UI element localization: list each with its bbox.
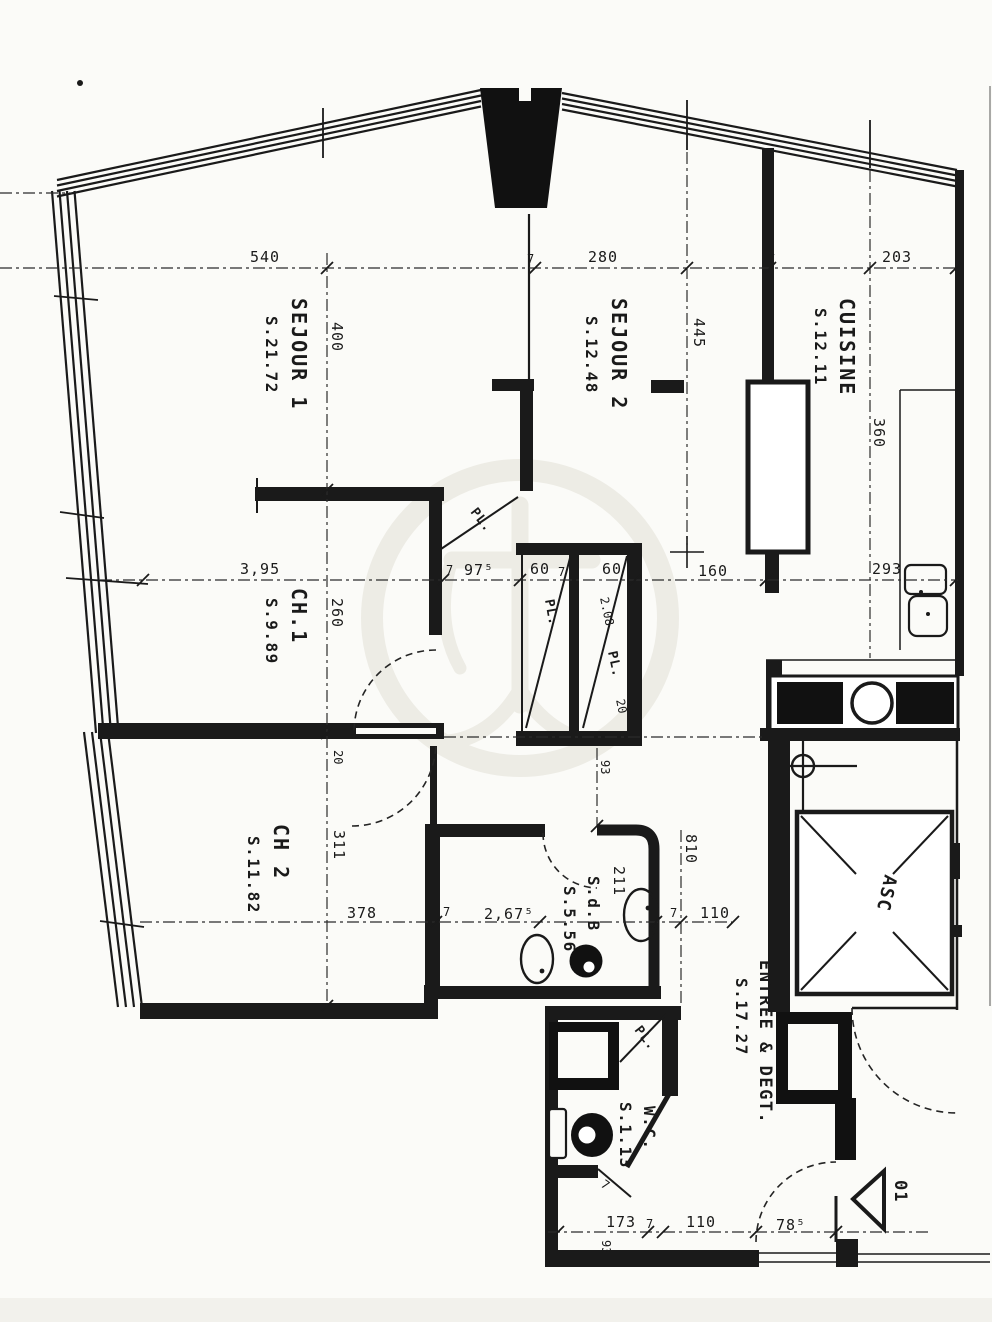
closet-label-pl1: PL. — [467, 505, 495, 535]
door-number-label: 01 — [890, 1180, 910, 1202]
dim-203: 203 — [882, 248, 912, 266]
door-number-triangle-icon — [853, 1171, 884, 1229]
room-area-sejour1: S.21.72 — [262, 316, 281, 394]
dim-785: 78⁵ — [776, 1216, 806, 1234]
dim-211: 211 — [610, 866, 628, 896]
room-area-sdb: S.5.56 — [560, 886, 579, 953]
dim-7-w3: 7 — [770, 564, 777, 578]
duct-left — [777, 682, 843, 724]
dim-7-top2: 7 — [768, 252, 775, 266]
room-label-wc: W.C. — [640, 1106, 659, 1151]
floor-plan-page: SEJOUR 1 S.21.72 SEJOUR 2 S.12.48 CUISIN… — [0, 0, 992, 1322]
duct-pipe-circle — [852, 683, 892, 723]
room-label-ch2: CH 2 — [269, 824, 293, 880]
stray-ink-dot — [77, 80, 83, 86]
closet-dim-208: 2.08 — [597, 596, 617, 627]
dim-7-top1: 7 — [527, 252, 534, 266]
door-arc-lobby — [852, 1008, 957, 1113]
dim-293: 293 — [872, 560, 902, 578]
dim-311: 311 — [330, 830, 348, 860]
dim-378: 378 — [347, 904, 377, 922]
dim-540: 540 — [250, 248, 280, 266]
dim-93-hall: 93 — [598, 760, 612, 774]
kitchen-unit — [748, 382, 808, 552]
room-area-wc: S.1.13 — [616, 1102, 635, 1169]
dim-7-w2: 7 — [558, 565, 565, 579]
room-area-entree: S.17.27 — [732, 978, 751, 1056]
dim-110-b: 110 — [686, 1213, 716, 1231]
wc-cistern — [549, 1109, 566, 1158]
dim-260: 260 — [328, 598, 346, 628]
dim-7-b1: 7 — [646, 1217, 653, 1231]
dim-2675: 2,67⁵ — [484, 905, 534, 923]
dim-7-ch2: 7 — [443, 905, 450, 919]
dim-400: 400 — [328, 322, 346, 352]
dim-60b: 60 — [602, 560, 622, 578]
dim-110-hall: 110 — [700, 904, 730, 922]
dim-7-w1: 7 — [446, 563, 453, 577]
room-label-cuisine: CUISINE — [835, 298, 859, 396]
duct-band — [760, 660, 960, 741]
dim-445: 445 — [690, 318, 708, 348]
dim-810: 810 — [682, 834, 700, 864]
room-label-sejour1: SEJOUR 1 — [287, 298, 311, 410]
dim-160: 160 — [698, 562, 728, 580]
dim-173: 173 — [606, 1213, 636, 1231]
room-area-sejour2: S.12.48 — [582, 316, 601, 394]
scan-edge-shadow — [0, 1298, 992, 1322]
facade-column — [480, 88, 562, 208]
room-area-ch1: S.9.89 — [262, 598, 281, 665]
closet-label-pl2: PL. — [541, 598, 560, 627]
dim-93-b: 93 — [599, 1240, 613, 1254]
closet-label-pl4: PL. — [631, 1023, 659, 1053]
duct-right — [896, 682, 954, 724]
dim-20: 20 — [331, 750, 345, 764]
lift — [777, 741, 952, 994]
room-area-cuisine: S.12.11 — [811, 308, 830, 386]
closet-dim-20: 20 — [613, 698, 630, 715]
room-label-sejour2: SEJOUR 2 — [607, 298, 631, 410]
room-label-entree: ENTREE & DEGT. — [755, 960, 775, 1124]
door-arc-ch2 — [352, 742, 436, 826]
closet-label-pl3: PL. — [604, 650, 624, 679]
dim-280: 280 — [588, 248, 618, 266]
dim-60a: 60 — [530, 560, 550, 578]
sdb-washbasin — [521, 935, 553, 983]
room-area-ch2: S.11.82 — [244, 836, 263, 914]
watermark-logo — [372, 470, 668, 766]
floor-plan-drawing: SEJOUR 1 S.21.72 SEJOUR 2 S.12.48 CUISIN… — [0, 0, 992, 1322]
room-label-sdb: S.d.B — [584, 876, 603, 932]
sdb-right-wall — [597, 830, 654, 990]
room-label-ch1: CH.1 — [287, 588, 311, 644]
dim-975: 97⁵ — [464, 561, 494, 579]
dim-7-wcdoor: 7 — [598, 1177, 612, 1193]
dim-360: 360 — [870, 418, 888, 448]
duct-beside-wc — [549, 1022, 619, 1090]
dim-395: 3,95 — [240, 560, 280, 578]
dim-7-hall: 7 — [670, 906, 677, 920]
duct-below-lift — [776, 1012, 856, 1160]
right-exterior-wall — [955, 170, 964, 676]
